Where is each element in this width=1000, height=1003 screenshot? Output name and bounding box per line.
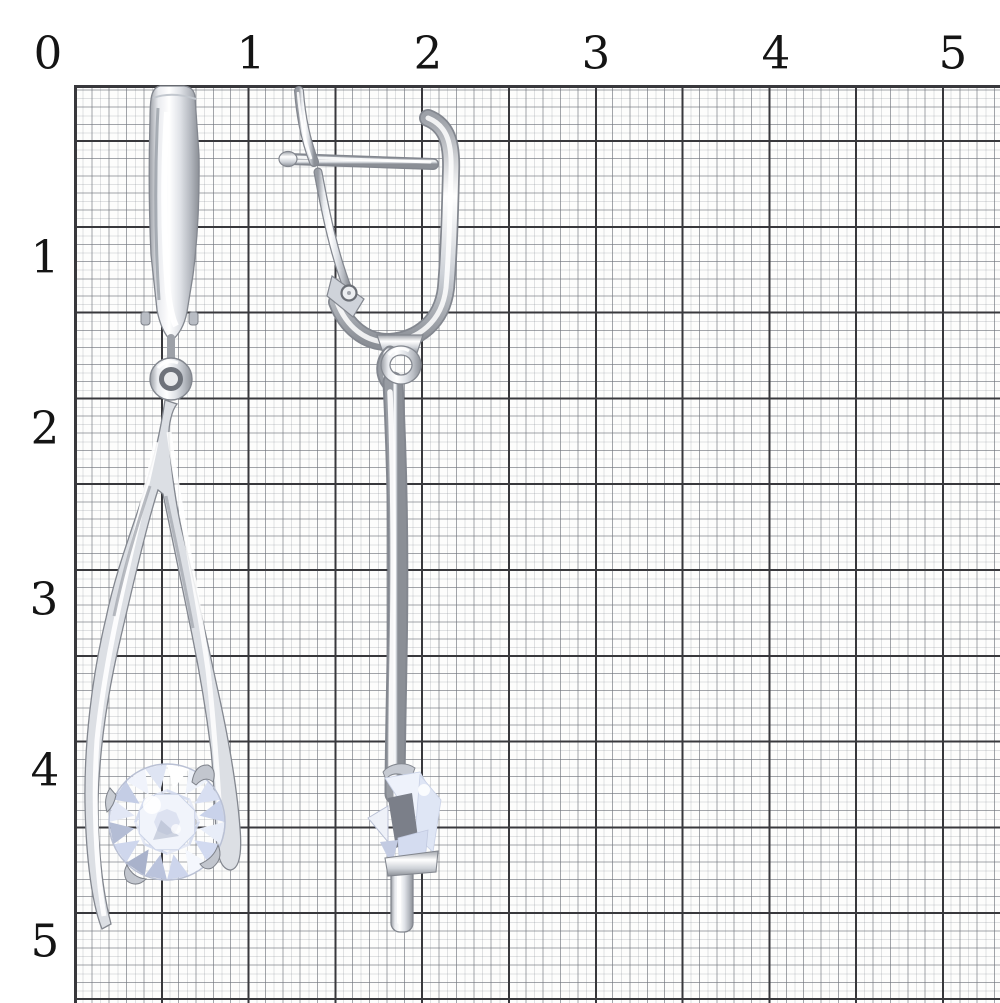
hinge-pin-right [189, 312, 198, 325]
connector-ring [150, 358, 192, 400]
lock-hinge [318, 172, 364, 317]
ear-pin [279, 152, 433, 167]
jewelry-illustration [0, 0, 1000, 1000]
hinge-pin-left [141, 312, 150, 325]
cz-stone-side [368, 764, 441, 876]
earring-side-view [279, 91, 451, 932]
drop-bar [390, 382, 398, 794]
lock-hook-wire [298, 91, 314, 162]
earring-front-view [85, 86, 241, 929]
connector-ring-side [381, 346, 421, 384]
